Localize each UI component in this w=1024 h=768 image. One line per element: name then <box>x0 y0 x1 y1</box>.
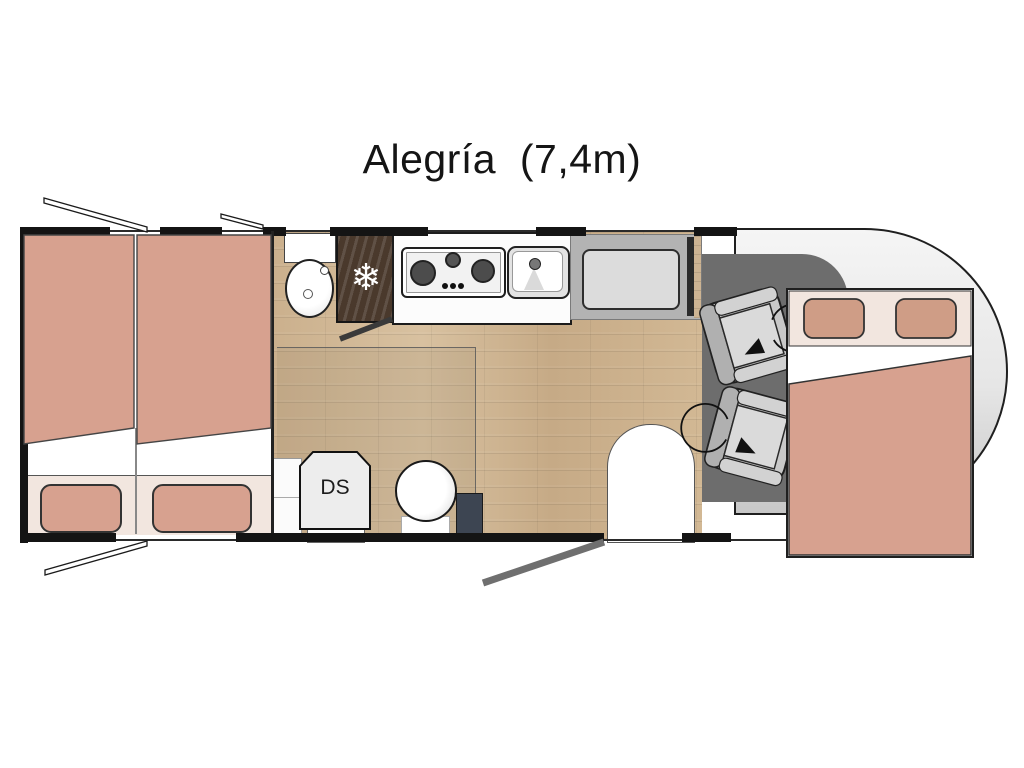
twin-bed-divider <box>135 428 137 534</box>
fridge: ❄ <box>336 232 396 323</box>
snowflake-icon: ❄ <box>350 259 381 296</box>
wall-top-6 <box>694 227 737 236</box>
bench-backrest-strip <box>687 237 694 316</box>
toilet-flush-button <box>320 266 329 275</box>
cab-floor <box>701 254 848 502</box>
toilet-seat-detail <box>303 289 313 299</box>
wall-rear <box>20 227 28 543</box>
wall-top-4 <box>330 227 428 236</box>
bedroom-partition-wall <box>271 231 274 536</box>
wall-top-2 <box>160 227 222 236</box>
open-window-flap-small <box>221 214 263 229</box>
rear-bed-pillow-right <box>152 484 252 533</box>
entry-door-swing <box>483 542 604 583</box>
open-window-flap-rear-bottom <box>45 541 147 575</box>
plan-title: Alegría (7,4m) <box>0 136 1004 183</box>
wall-bottom-3 <box>682 533 731 542</box>
hob-knob <box>450 283 456 289</box>
wall-bottom-1 <box>20 533 116 542</box>
wall-top-5 <box>536 227 586 236</box>
wall-bottom-2 <box>236 533 604 542</box>
dinette-bench-cushion <box>582 249 680 310</box>
side-shelf-divider <box>272 497 300 498</box>
entry-door-leaf <box>607 424 695 543</box>
bench-side-wood-trim <box>694 234 701 318</box>
sink-faucet <box>529 258 541 270</box>
side-shelf <box>272 458 302 542</box>
wall-top-1 <box>20 227 110 236</box>
ds-cabinet-label: DS <box>300 452 370 524</box>
hob-burner-small <box>445 252 461 268</box>
wall-top-3 <box>263 227 286 236</box>
stool-table <box>395 460 457 522</box>
rear-bed-pillow-left <box>40 484 122 533</box>
hob-burner-left <box>410 260 436 286</box>
hob-burner-right <box>471 259 495 283</box>
hob-knob <box>442 283 448 289</box>
floorplan-canvas: Alegría (7,4m) ❄ <box>0 0 1024 768</box>
hob-knob <box>458 283 464 289</box>
sink-water-spray <box>524 268 544 290</box>
